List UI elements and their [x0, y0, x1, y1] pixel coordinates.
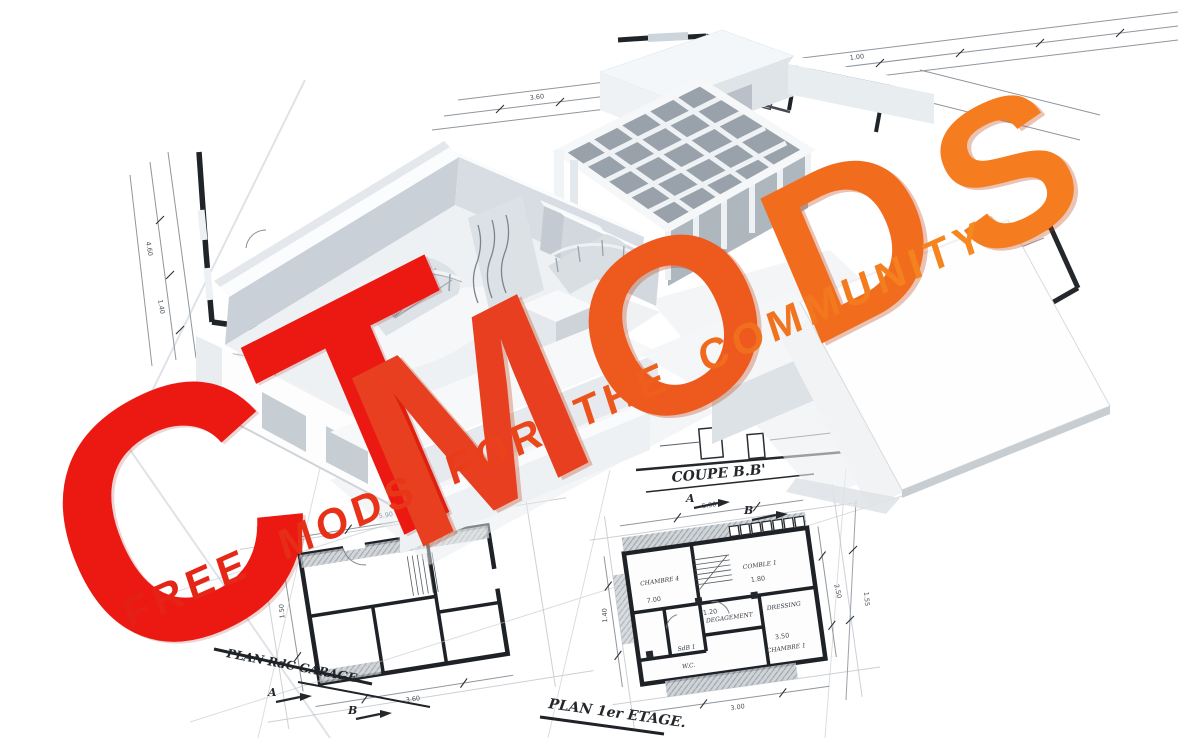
dimension-label: 1.40 [601, 608, 610, 623]
section-marker-letter: B [347, 704, 357, 717]
arrow-head-icon [300, 693, 312, 701]
sheet-rule-line [298, 682, 430, 707]
dimension-label: 1.00 [849, 52, 864, 62]
section-marker-a-right: A [685, 492, 730, 508]
floor-plan-right: COMBLE 1 CHAMBRE 4 DEGAGEMENT DRESSING S… [587, 481, 884, 731]
section-marker-letter: B [743, 504, 753, 517]
section-marker-letter: A [685, 492, 695, 505]
ct-mods-poster: 3.60 1.50 1.00 4.60 1.40 3.00 [0, 0, 1180, 738]
dimension-label: 3.60 [529, 92, 544, 102]
section-marker-a-left: A [267, 686, 312, 702]
arrow-head-icon [718, 499, 730, 507]
floor-plan-label: PLAN 1er ETAGE. [546, 696, 686, 731]
dimension-label: 3.00 [730, 702, 745, 712]
dimension-label: 4.60 [144, 241, 154, 257]
dimension-label: 1.55 [862, 591, 871, 606]
dimension-label: 2.50 [832, 583, 843, 599]
arrow-head-icon [380, 710, 392, 718]
